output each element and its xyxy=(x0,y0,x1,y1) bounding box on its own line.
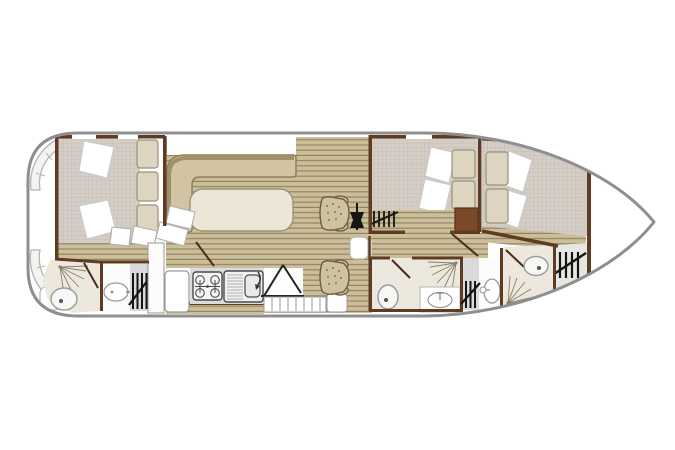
pillow xyxy=(79,141,114,178)
helm-seat-1 xyxy=(320,196,349,231)
mid-cabin xyxy=(369,137,478,233)
mid-bathroom xyxy=(372,258,480,312)
sink-icon xyxy=(224,271,263,302)
stove-icon xyxy=(193,272,222,300)
headboard-cushion xyxy=(486,189,508,223)
headboard-cushion xyxy=(452,181,475,209)
helm-seat-2 xyxy=(320,260,349,295)
toilet-icon xyxy=(524,257,548,276)
toilet-icon xyxy=(51,288,77,310)
headboard-cushion xyxy=(486,152,508,185)
tall-cupboard xyxy=(148,243,164,313)
hanging-locker-icon xyxy=(369,211,398,227)
washbasin-icon xyxy=(420,287,460,312)
toilet-icon xyxy=(378,285,398,309)
headboard-cushion xyxy=(452,150,475,178)
floor-plan-canvas xyxy=(0,0,675,450)
saloon-table xyxy=(190,189,293,231)
boat-floor-plan xyxy=(0,0,675,450)
fridge-counter xyxy=(165,271,189,312)
headboard-cushion xyxy=(137,172,158,201)
headboard-cushion xyxy=(137,140,158,168)
wardrobe xyxy=(455,208,478,233)
